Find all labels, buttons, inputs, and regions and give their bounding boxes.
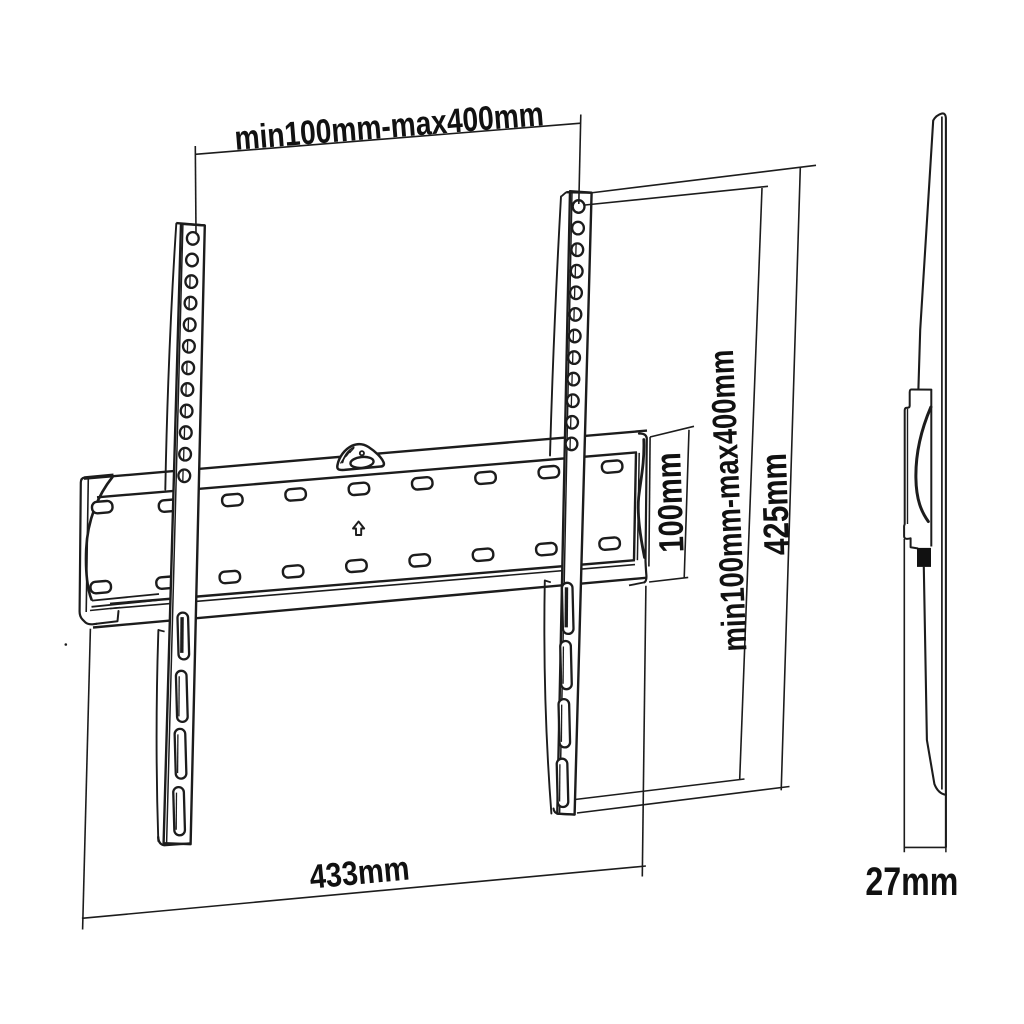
svg-text:100mm: 100mm [649, 452, 691, 553]
svg-text:27mm: 27mm [865, 860, 958, 904]
svg-text:425mm: 425mm [753, 453, 798, 556]
